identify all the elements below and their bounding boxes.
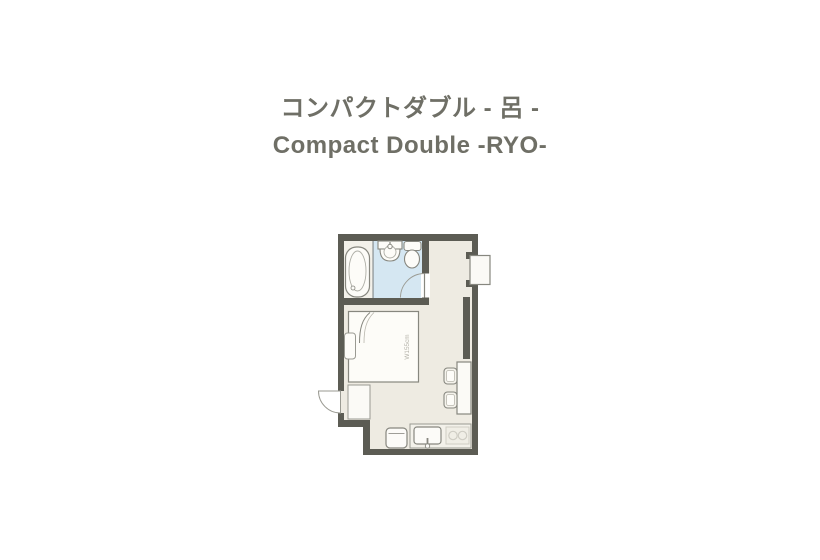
wall-bottom xyxy=(363,449,478,455)
stool xyxy=(444,392,457,408)
door-swing-arc xyxy=(319,391,341,413)
stool xyxy=(444,368,457,384)
bathroom-partition xyxy=(372,241,373,298)
pillow xyxy=(345,333,356,359)
bathtub-drain-icon xyxy=(351,286,355,290)
mini-fridge xyxy=(386,428,407,448)
floor-plan-drawing: W155cm xyxy=(310,225,500,465)
wall-left-upper xyxy=(338,234,344,391)
desk xyxy=(457,362,471,414)
two-burner-stove xyxy=(446,427,469,444)
entry-step xyxy=(348,385,370,419)
kitchenette-counter xyxy=(410,424,471,448)
tv-counter xyxy=(463,297,470,359)
bathtub xyxy=(346,247,370,297)
room-title-ja: コンパクトダブル - 呂 - xyxy=(0,90,820,127)
ac-unit xyxy=(466,252,490,287)
faucet-icon xyxy=(388,244,392,248)
floor-plan: W155cm xyxy=(310,225,500,465)
wall-bathroom-bottom xyxy=(338,298,422,305)
wall-left-stub xyxy=(338,413,344,422)
entrance-door xyxy=(319,391,341,413)
double-bed: W155cm xyxy=(345,312,419,383)
toilet xyxy=(404,242,421,269)
wall-top xyxy=(338,234,478,241)
page-title: コンパクトダブル - 呂 - Compact Double -RYO- xyxy=(0,90,820,164)
faucet-icon xyxy=(425,444,429,448)
bed-width-label: W155cm xyxy=(404,334,411,359)
room-title-en: Compact Double -RYO- xyxy=(0,127,820,164)
